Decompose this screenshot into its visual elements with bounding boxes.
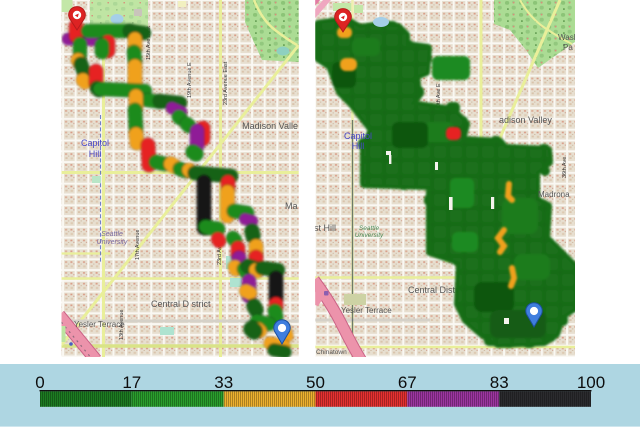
svg-text:33: 33	[214, 373, 233, 392]
svg-text:Chinatown: Chinatown	[316, 349, 347, 356]
svg-text:19th Avenue E: 19th Avenue E	[187, 62, 193, 98]
svg-text:17: 17	[122, 373, 141, 392]
svg-text:83: 83	[490, 373, 509, 392]
svg-text:0: 0	[35, 373, 44, 392]
svg-text:13th Avenue: 13th Avenue	[119, 310, 125, 340]
svg-text:University: University	[97, 239, 128, 246]
svg-text:adison Valley: adison Valley	[499, 115, 552, 125]
svg-text:Hill: Hill	[352, 141, 365, 151]
svg-text:st Hill: st Hill	[314, 223, 336, 233]
svg-text:Central D strict: Central D strict	[151, 299, 211, 309]
svg-text:23rd Avenue East: 23rd Avenue East	[223, 61, 229, 105]
svg-text:17th Avenue: 17th Avenue	[135, 230, 141, 260]
svg-text:Madison Valle: Madison Valle	[242, 121, 298, 131]
svg-text:36th Ave: 36th Ave	[562, 157, 568, 178]
svg-text:Yesler Terrace: Yesler Terrace	[341, 306, 392, 315]
svg-text:Hill: Hill	[89, 149, 102, 159]
svg-text:University: University	[355, 232, 384, 239]
svg-text:67: 67	[398, 373, 417, 392]
svg-text:100: 100	[577, 373, 605, 392]
svg-text:Pa: Pa	[563, 43, 573, 52]
svg-text:50: 50	[306, 373, 325, 392]
svg-text:Capitol: Capitol	[81, 138, 109, 148]
svg-text:Yesler Terrace: Yesler Terrace	[74, 320, 125, 329]
svg-text:Capitol: Capitol	[344, 131, 372, 141]
svg-text:Ma: Ma	[285, 201, 298, 211]
svg-text:Madrona: Madrona	[538, 190, 570, 199]
svg-text:Seattle: Seattle	[101, 231, 123, 238]
svg-text:Seattle: Seattle	[359, 225, 380, 232]
